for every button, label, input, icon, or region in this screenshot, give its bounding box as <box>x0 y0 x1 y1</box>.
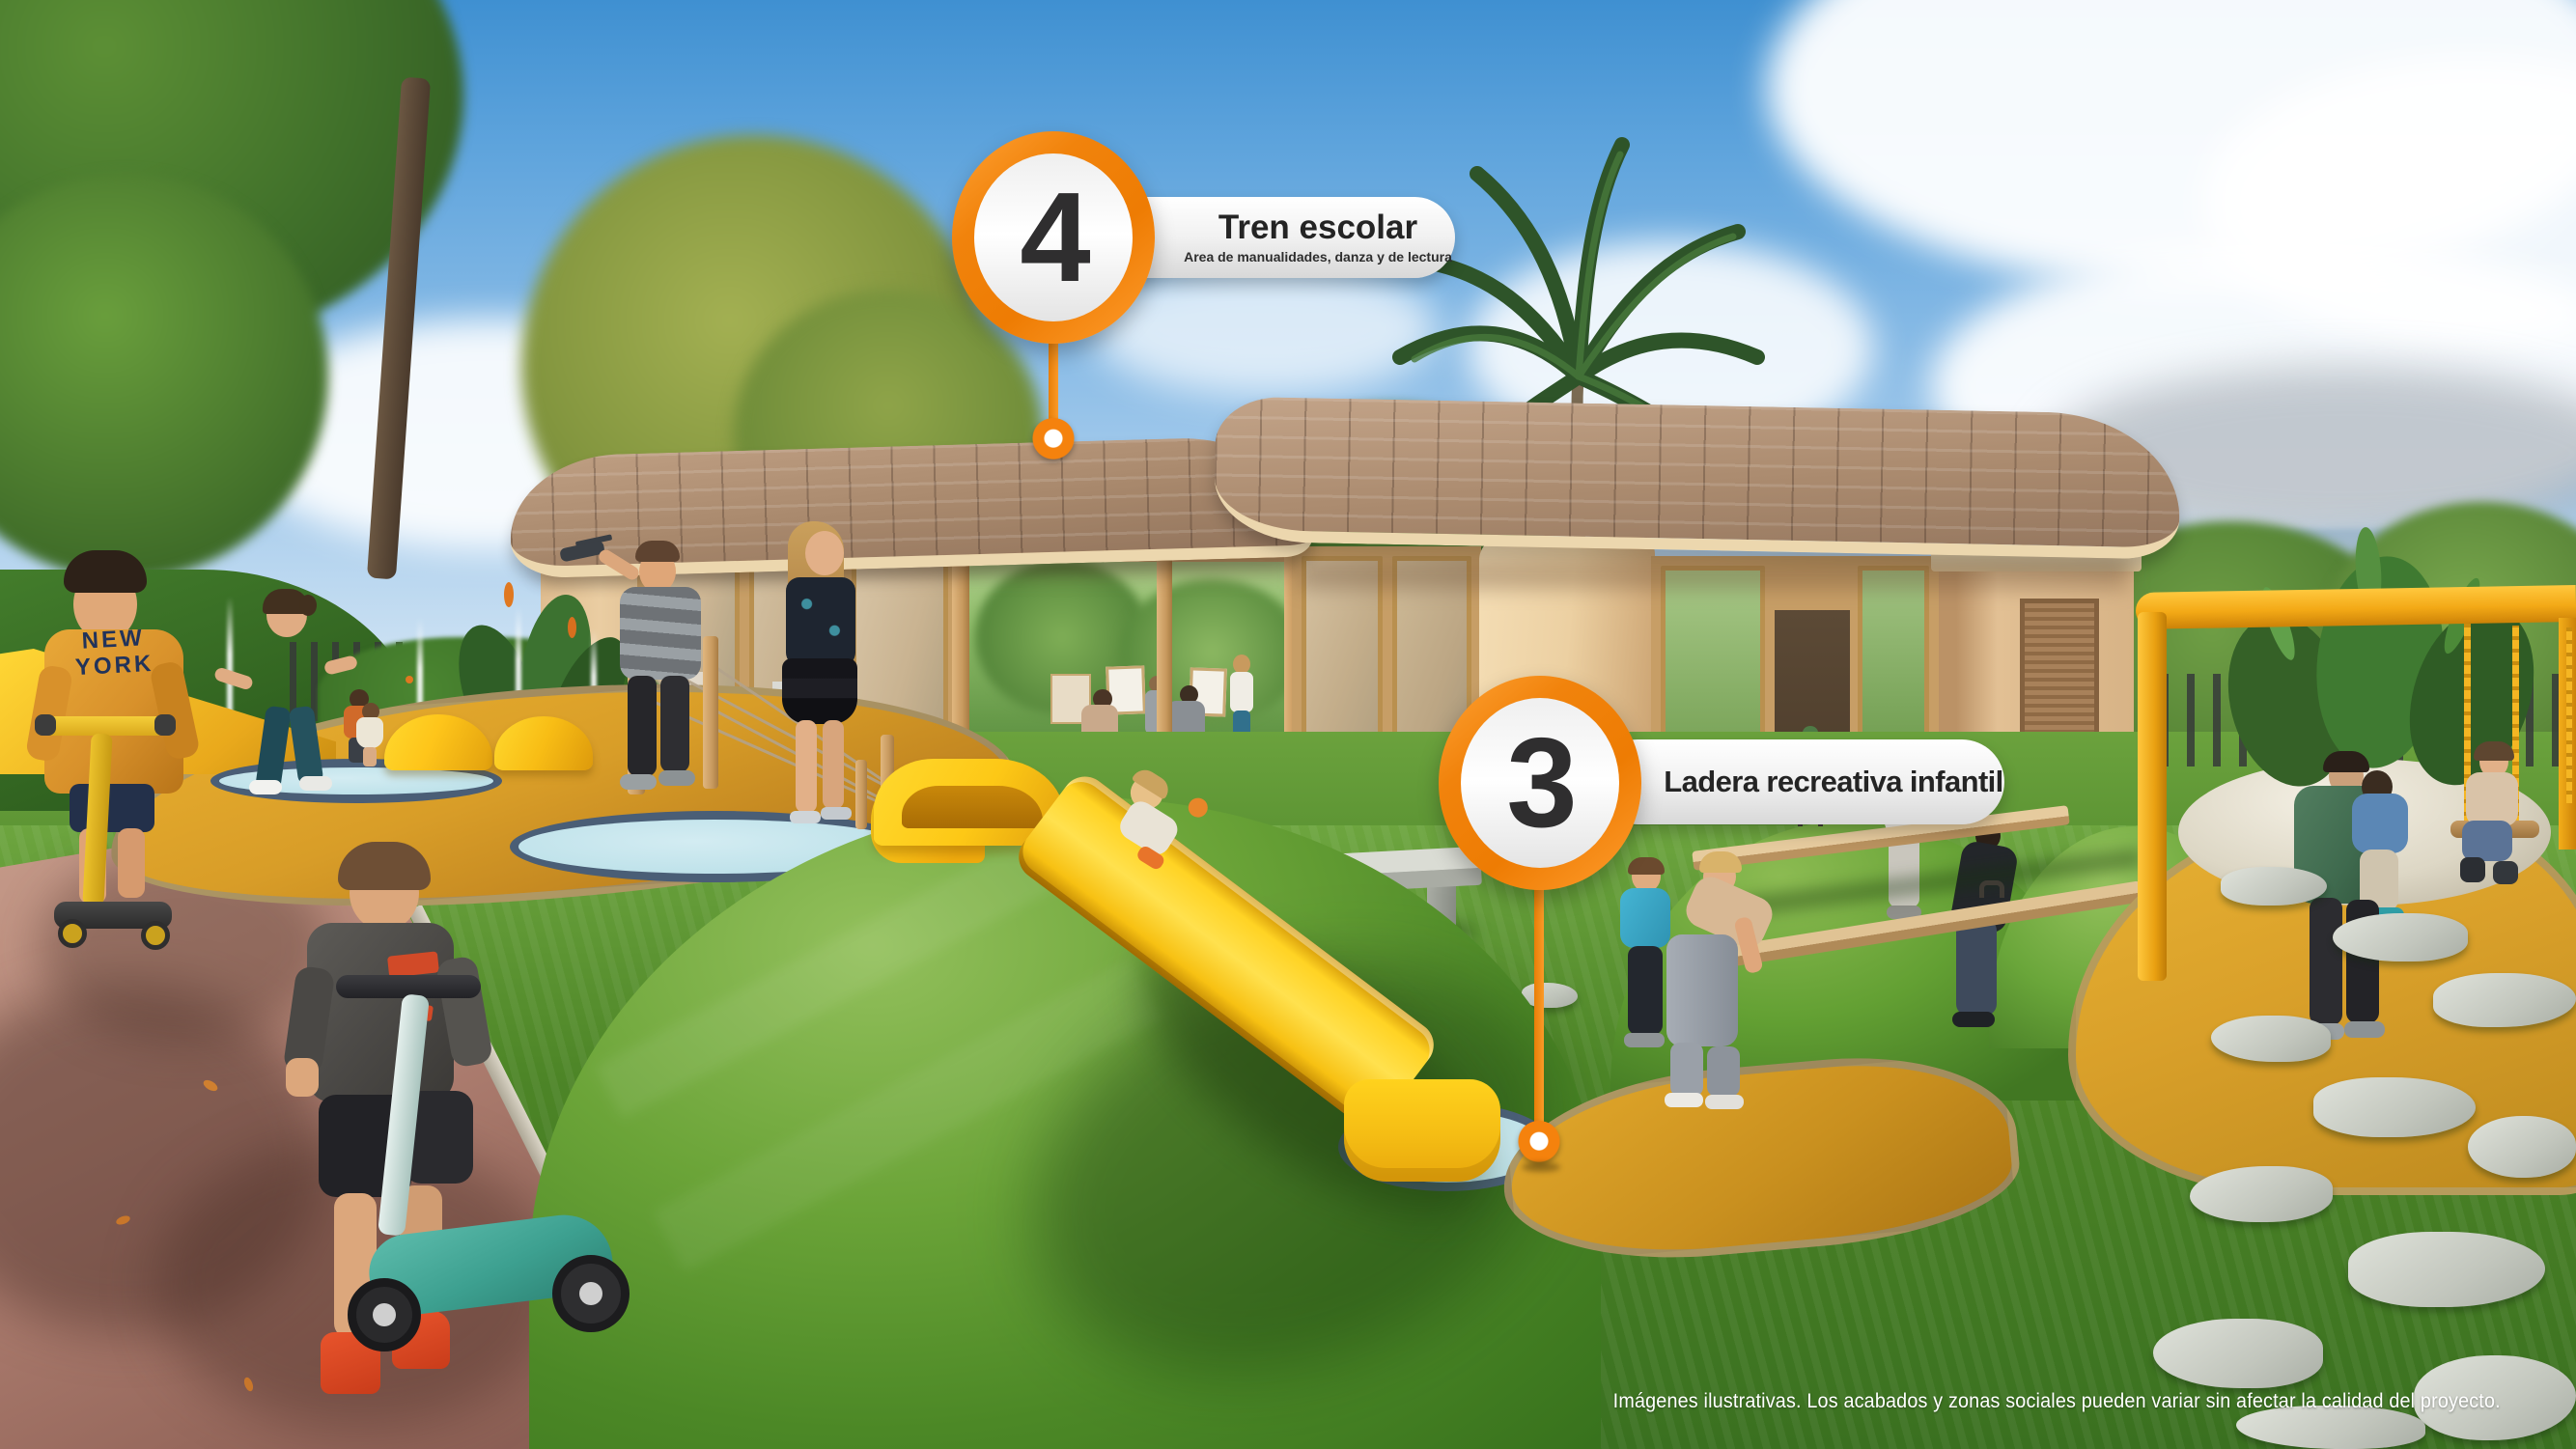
person-boy-striped <box>560 539 714 813</box>
playground-render: NEW YORK <box>0 0 2576 1449</box>
callout-point <box>1517 1121 1561 1165</box>
callout-number: 4 <box>1020 174 1086 301</box>
swing-post <box>2138 612 2167 981</box>
flower <box>406 676 413 683</box>
person-girl-swinging <box>2460 745 2528 890</box>
stepping-stone <box>2468 1116 2576 1178</box>
seesaw-handle <box>1979 880 2004 898</box>
person-boy-newyork: NEW YORK <box>37 550 201 946</box>
callout-number: 3 <box>1506 719 1573 847</box>
person-woman-bending <box>1647 857 1778 1110</box>
callout-label: Tren escolar Area de manualidades, danza… <box>1106 197 1455 278</box>
swing-chain <box>2566 627 2572 803</box>
stepping-stone <box>2348 1232 2545 1307</box>
callout-label: Ladera recreativa infantil <box>1595 739 2004 824</box>
slide-end-cap <box>1344 1079 1500 1182</box>
callout-point-shadow <box>1522 1162 1560 1172</box>
person-boy-scooter <box>299 842 647 1449</box>
stepping-stone <box>2221 867 2327 906</box>
person-toddler-dress <box>353 703 388 766</box>
callout-stem <box>1534 878 1544 1128</box>
stepping-stone <box>2190 1166 2333 1222</box>
callout-badge-4[interactable]: 4 <box>952 131 1155 344</box>
stepping-stone <box>2153 1319 2323 1388</box>
scooter-yellow-handlebar <box>42 716 166 736</box>
stepping-stone <box>2333 913 2468 961</box>
person-girl-red <box>210 591 357 795</box>
callout-badge-3[interactable]: 3 <box>1439 676 1641 890</box>
callout-title: Tren escolar <box>1218 210 1417 246</box>
eave-shadow <box>1299 558 2129 589</box>
callout-point <box>1031 418 1076 462</box>
callout-title: Ladera recreativa infantil <box>1664 766 2002 798</box>
disclaimer-text: Imágenes ilustrativas. Los acabados y zo… <box>1613 1390 2501 1413</box>
sweater-text: NEW YORK <box>65 625 164 682</box>
person-girl-floral <box>778 521 869 842</box>
callout-subtitle: Area de manualidades, danza y de lectura <box>1184 249 1452 265</box>
swing-crossbar <box>2136 585 2576 629</box>
slide-mouth <box>902 786 1043 828</box>
stepping-stone <box>2313 1077 2476 1137</box>
roof-right <box>1214 396 2182 559</box>
